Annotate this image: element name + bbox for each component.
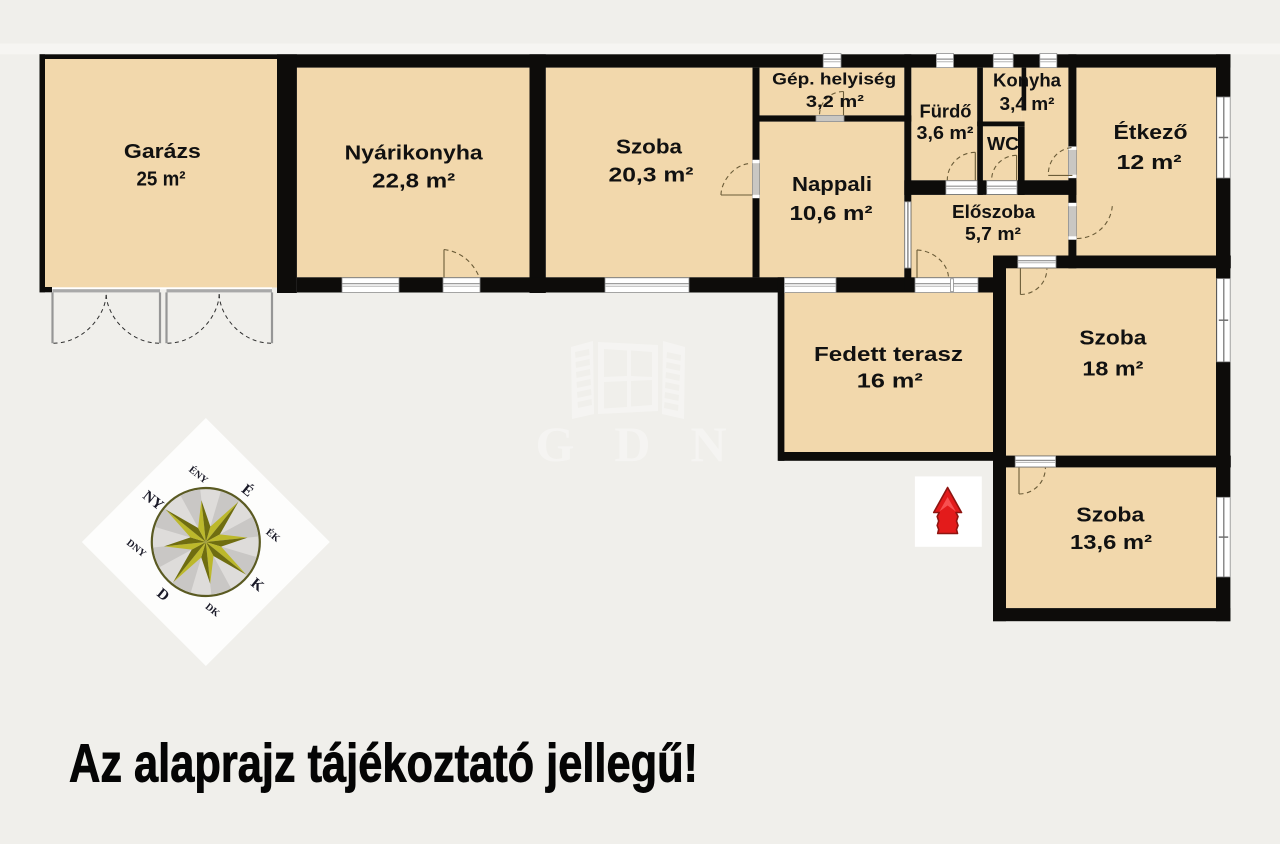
svg-text:Szoba: Szoba (616, 136, 683, 158)
svg-text:Nappali: Nappali (792, 174, 872, 196)
svg-text:18 m²: 18 m² (1082, 359, 1143, 381)
svg-text:WC: WC (987, 134, 1019, 154)
svg-text:Szoba: Szoba (1076, 505, 1145, 527)
svg-text:3,4 m²: 3,4 m² (1000, 94, 1055, 114)
svg-text:5,7 m²: 5,7 m² (965, 224, 1021, 244)
svg-text:Szoba: Szoba (1079, 328, 1147, 350)
svg-text:25 m²: 25 m² (137, 169, 186, 191)
svg-text:Garázs: Garázs (124, 141, 201, 163)
svg-text:10,6 m²: 10,6 m² (790, 203, 873, 225)
svg-text:Étkező: Étkező (1114, 121, 1188, 144)
svg-text:13,6 m²: 13,6 m² (1070, 532, 1152, 554)
svg-text:3,2 m²: 3,2 m² (806, 92, 864, 111)
svg-text:Gép. helyiség: Gép. helyiség (772, 70, 896, 89)
svg-text:Fedett terasz: Fedett terasz (814, 344, 963, 366)
svg-text:16 m²: 16 m² (857, 371, 923, 393)
svg-text:Nyárikonyha: Nyárikonyha (345, 142, 484, 164)
svg-text:20,3 m²: 20,3 m² (609, 164, 694, 186)
svg-text:Az alaprajz tájékoztató jelleg: Az alaprajz tájékoztató jellegű! (69, 734, 698, 794)
svg-text:22,8 m²: 22,8 m² (372, 170, 455, 192)
svg-text:Fürdő: Fürdő (920, 102, 972, 122)
svg-text:3,6 m²: 3,6 m² (917, 123, 974, 143)
svg-text:Konyha: Konyha (993, 71, 1062, 91)
svg-text:12 m²: 12 m² (1117, 152, 1182, 174)
svg-text:Előszoba: Előszoba (952, 202, 1036, 222)
svg-text:GDN: GDN (535, 416, 766, 472)
